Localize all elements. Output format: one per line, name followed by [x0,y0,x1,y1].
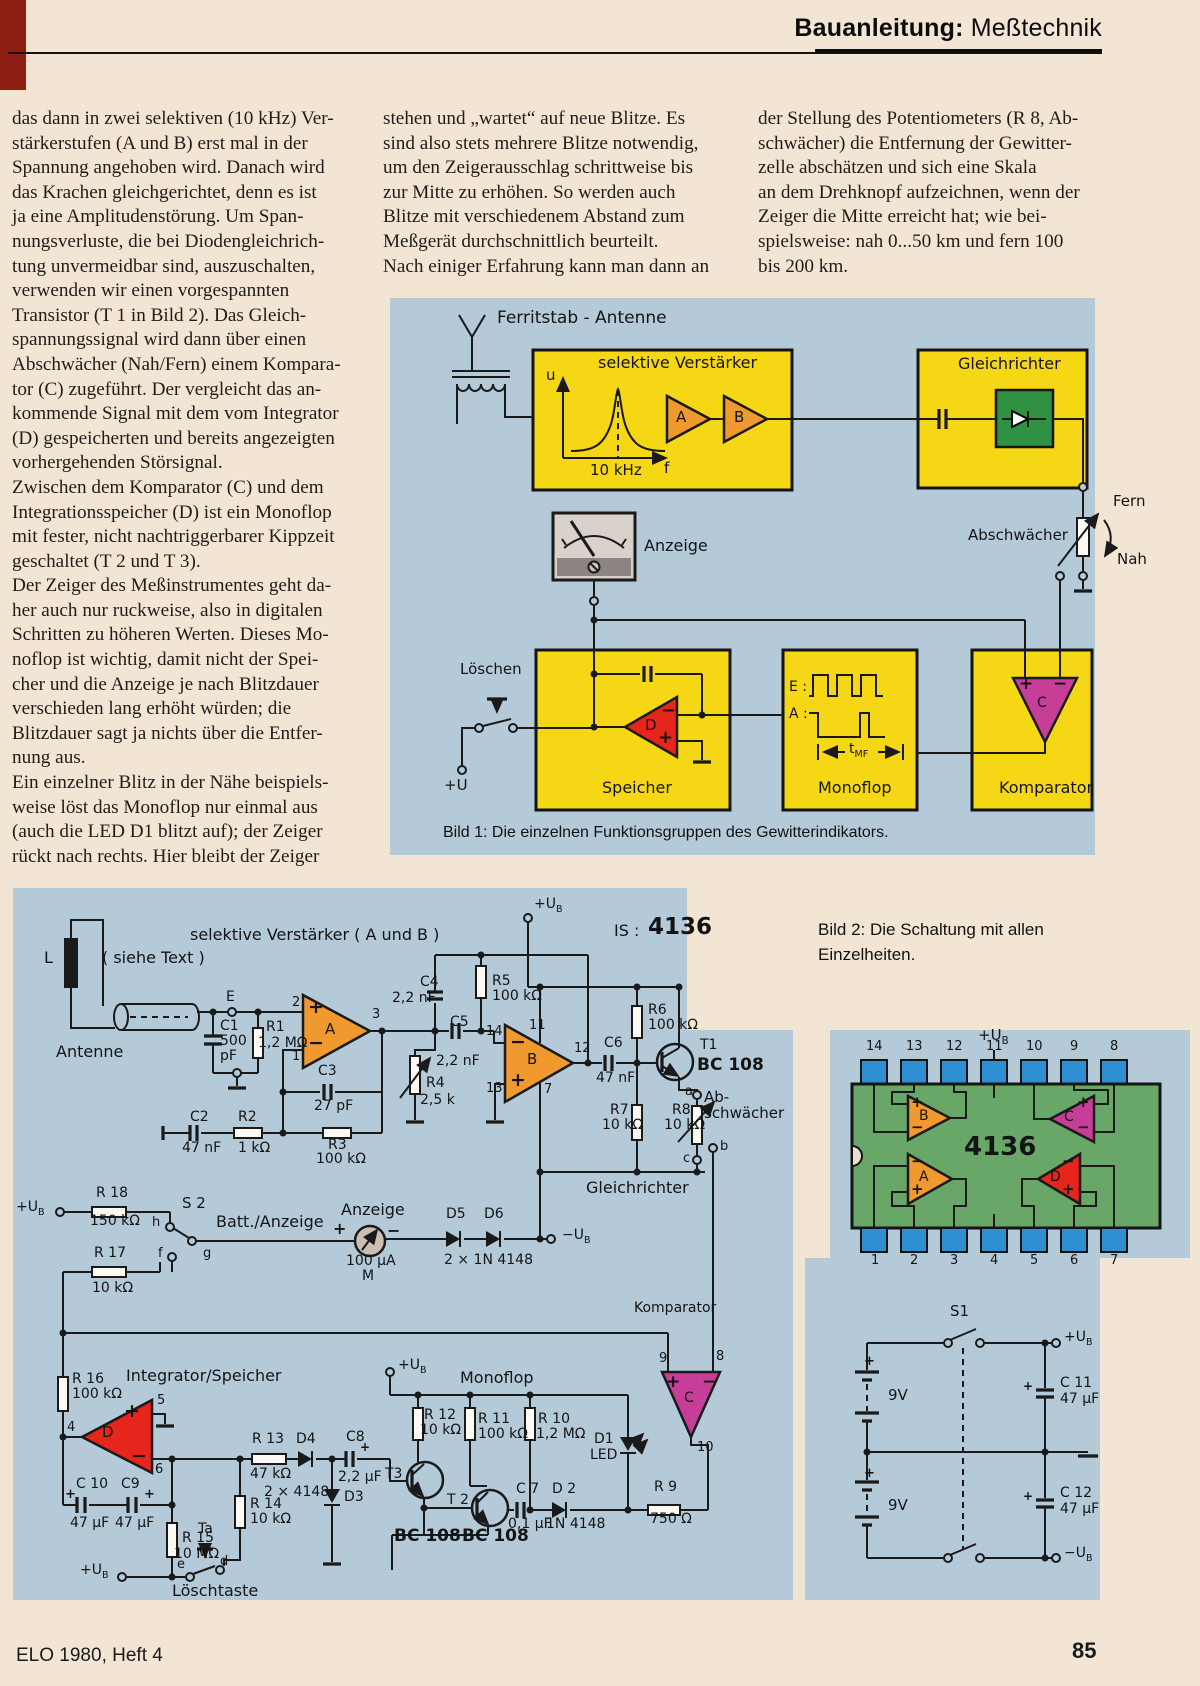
schematic-label: C [1037,696,1047,711]
schematic-label: 10 kΩ [92,1281,133,1296]
schematic-label: T1 [700,1038,717,1053]
schematic-label: 2,5 k [420,1093,455,1108]
schematic-label: 47 nF [182,1141,221,1156]
schematic-labels: Ferritstab - Antenneselektive Verstärker… [0,0,1200,1686]
schematic-label: 10 kΩ [664,1118,705,1133]
schematic-label: +UB [534,897,563,915]
bild1-caption: Bild 1: Die einzelnen Funktionsgruppen d… [443,824,889,842]
monoflop-title: Monoflop [818,780,892,797]
schematic-label: R 17 [94,1246,126,1261]
schematic-label: LED [590,1448,617,1463]
schematic-label: + [666,1373,680,1391]
schematic-label: 13 [906,1040,923,1054]
schematic-label: R6 [648,1003,667,1018]
schematic-label: +UB [398,1358,427,1376]
schematic-label: T 2 [447,1493,469,1508]
schematic-label: 9V [888,1388,908,1404]
schematic-label: − [308,1033,324,1053]
schematic-label: C3 [318,1064,337,1079]
komparator-label-2: Komparator [634,1301,716,1316]
schematic-label: 2 × 4148 [264,1485,329,1500]
schematic-label: R4 [426,1076,445,1091]
schematic-label: + [1023,1490,1033,1503]
schematic-label: 11 [529,1019,546,1033]
schematic-label: c [683,1152,690,1166]
schematic-label: E [226,990,235,1005]
schematic-label: 10 [1026,1040,1043,1054]
loeschen-label: Löschen [460,662,522,678]
schematic-label: 8 [716,1350,724,1364]
schematic-label: + [911,1182,924,1198]
schematic-label: 47 μF [1060,1392,1099,1407]
bild2-caption: Bild 2: Die Schaltung mit allen Einzelhe… [818,918,1044,967]
schematic-label: + [510,1070,526,1090]
schematic-label: 1 [292,1050,300,1064]
anzeige-label: Anzeige [644,538,708,555]
schematic-label: 1N 4148 [546,1517,605,1532]
schematic-label: E : [789,680,807,695]
schematic-label: S 2 [182,1196,206,1212]
schematic-label: C [684,1391,694,1406]
schematic-label: −UB [1064,1546,1093,1564]
schematic-label: + [360,1441,370,1454]
schematic-label: C4 [420,975,439,990]
schematic-label: R 18 [96,1186,128,1201]
schematic-label: R 10 [538,1412,570,1427]
schematic-label: 10 [697,1441,714,1455]
schematic-label: D6 [484,1207,504,1222]
schematic-label: 12 [946,1040,963,1054]
schematic-label: − [131,1446,147,1466]
schematic-label: L [44,950,53,967]
selektive-verstaerker-title: selektive Verstärker [598,355,757,372]
schematic-label: + [864,1467,875,1481]
schematic-label: C 12 [1060,1486,1092,1501]
schematic-label: 47 kΩ [250,1467,291,1482]
schematic-label: g [203,1247,211,1261]
schematic-label: − [661,701,676,720]
antenne-label: Antenne [56,1044,123,1061]
schematic-label: 6 [1070,1254,1078,1268]
schematic-label: 2 × 1N 4148 [444,1253,533,1268]
schematic-label: − [387,1223,400,1240]
schematic-label: 100 kΩ [316,1152,366,1167]
schematic-label: 47 μF [115,1516,154,1531]
schematic-label: + [308,997,324,1017]
amp-b-label: B [734,410,744,426]
schematic-label: 11 [986,1040,1003,1054]
schematic-label: 47 μF [1060,1502,1099,1517]
schematic-label: C5 [450,1015,469,1030]
komparator-title: Komparator [999,780,1093,797]
schematic-label: + [1077,1095,1090,1111]
schematic-label: 47 μF [70,1516,109,1531]
schematic-label: BC 108 [394,1527,461,1545]
amp-a-label: A [676,410,686,426]
schematic-label: 7 [544,1083,552,1097]
schematic-label: R7 [610,1103,629,1118]
schematic-label: A [325,1022,335,1038]
10khz-label: 10 kHz [590,463,642,479]
schematic-label: +UB [1064,1330,1093,1348]
schematic-label: + [1023,1380,1033,1393]
schematic-label: C6 [604,1036,623,1051]
schematic-label: 2,2 μF [338,1470,382,1485]
schematic-label: b [720,1140,728,1154]
schematic-label: R 13 [252,1432,284,1447]
schematic-label: +UB [80,1563,109,1581]
schematic-label: 12 [574,1042,591,1056]
schematic-label: 9 [659,1352,667,1366]
schematic-label: R 11 [478,1412,510,1427]
nah-label: Nah [1117,552,1147,568]
schematic-label: − [1053,675,1067,693]
schematic-label: BC 108 [697,1056,764,1074]
u-axis-label: u [546,368,556,384]
ic-4136-label: 4136 [964,1134,1036,1162]
schematic-label: 3 [950,1254,958,1268]
schematic-label: S1 [950,1304,969,1320]
schematic-label: h [152,1216,160,1230]
schematic-label: A : [789,707,808,722]
schematic-label: + [658,728,673,747]
schematic-label: tMF [849,742,868,760]
schematic-label: D [102,1425,114,1441]
schematic-label: 2,2 nF [392,991,436,1006]
schematic-label: 13 [486,1082,503,1096]
schematic-label: e [177,1558,185,1572]
schematic-label: 2 [910,1254,918,1268]
schematic-label: R2 [238,1110,257,1125]
schematic-label: C2 [190,1110,209,1125]
schematic-label: D5 [446,1207,466,1222]
schematic-label: d [220,1555,228,1569]
schematic-label: R5 [492,974,511,989]
schematic-label: 8 [1110,1040,1118,1054]
schematic-label: 7 [1110,1254,1118,1268]
schematic-label: −UB [562,1228,591,1246]
schematic-label: + [1062,1182,1075,1198]
schematic-label: 4136 [648,915,712,939]
schematic-label: 100 μA [346,1254,396,1269]
schematic-label: C1 500 pF [220,1019,247,1063]
schematic-label: D3 [344,1490,364,1505]
schematic-label: − [1062,1154,1075,1170]
schematic-label: C9 [121,1477,140,1492]
anzeige-label-2: Anzeige [341,1202,405,1219]
schematic-label: IS : [614,923,639,940]
schematic-label: C 7 [516,1482,539,1497]
schematic-label: 2 [292,996,300,1010]
fern-label: Fern [1113,494,1145,510]
schematic-label: + [1019,675,1033,693]
schematic-label: 14 [866,1040,883,1054]
schematic-label: M [362,1269,374,1284]
magazine-page: Bauanleitung: Meßtechnik das dann in zwe… [0,0,1200,1686]
schematic-label: 2,2 nF [436,1054,480,1069]
schematic-label: B [527,1052,537,1068]
schematic-label: R 12 [424,1408,456,1423]
schematic-label: C 11 [1060,1376,1092,1391]
loeschtaste-label: Löschtaste [172,1583,258,1600]
schematic-label: 5 [157,1394,165,1408]
schematic-label: 10 kΩ [602,1118,643,1133]
schematic-label: 27 pF [314,1099,353,1114]
schematic-label: 4 [990,1254,998,1268]
bild2-amp-title: selektive Verstärker ( A und B ) [190,927,439,944]
schematic-label: + [144,1488,155,1502]
schematic-label: − [1077,1120,1090,1136]
schematic-label: 10 kΩ [250,1512,291,1527]
schematic-label: 100 kΩ [478,1427,528,1442]
schematic-label: + [864,1355,875,1369]
schematic-label: + [65,1488,76,1502]
schematic-label: 100 kΩ [648,1018,698,1033]
schematic-label: 10 kΩ [420,1423,461,1438]
schematic-label: 1,2 MΩ [536,1427,586,1442]
schematic-label: R1 [266,1020,285,1035]
schematic-label: 3 [372,1008,380,1022]
schematic-label: ( siehe Text ) [102,950,205,967]
schematic-label: + [333,1221,346,1238]
ferritstab-antenne-label: Ferritstab - Antenne [497,309,667,327]
f-axis-label: f [664,461,669,477]
abschwaecher-label: Abschwächer [968,528,1068,544]
schematic-label: 1 [871,1254,879,1268]
schematic-label: − [702,1373,716,1391]
schematic-label: R 9 [654,1480,677,1495]
schematic-label: 9 [1070,1040,1078,1054]
schematic-label: 750 Ω [650,1512,692,1527]
schematic-label: a [685,1085,693,1099]
schematic-label: 6 [155,1463,163,1477]
schematic-label: 4 [67,1421,75,1435]
monoflop-label-2: Monoflop [460,1370,534,1387]
gleichrichter-title: Gleichrichter [958,356,1061,373]
schematic-label: f [158,1247,163,1261]
plus-u-label: +U [444,778,468,794]
schematic-label: C [1064,1110,1074,1125]
schematic-label: 9V [888,1498,908,1514]
schematic-label: 1 kΩ [238,1141,270,1156]
schematic-label: Ab- schwächer [704,1090,784,1122]
schematic-label: 14 [486,1025,503,1039]
schematic-label: + [124,1401,140,1421]
schematic-label: 47 nF [596,1071,635,1086]
gleichrichter-label-2: Gleichrichter [586,1180,689,1197]
speicher-title: Speicher [602,780,672,797]
page-number: 85 [1072,1638,1096,1664]
schematic-label: − [911,1120,924,1136]
schematic-label: 1,2 MΩ [258,1036,308,1051]
integrator-speicher-title: Integrator/Speicher [126,1368,282,1385]
batt-anzeige-label: Batt./Anzeige [216,1214,324,1231]
schematic-label: R8 [672,1103,691,1118]
schematic-label: 100 kΩ [72,1387,122,1402]
schematic-label: C 10 [76,1477,108,1492]
schematic-label: R 16 [72,1372,104,1387]
schematic-label: − [911,1154,924,1170]
schematic-label: + [911,1095,924,1111]
schematic-label: − [510,1032,526,1052]
schematic-label: D1 [594,1432,614,1447]
schematic-label: 150 kΩ [90,1214,140,1229]
schematic-label: 100 kΩ [492,989,542,1004]
schematic-label: D [645,718,657,734]
schematic-label: T3 [385,1467,402,1482]
schematic-label: D 2 [552,1482,576,1497]
schematic-label: 5 [1030,1254,1038,1268]
footer-issue: ELO 1980, Heft 4 [16,1645,163,1667]
schematic-label: +UB [16,1200,45,1218]
schematic-label: D4 [296,1432,316,1447]
schematic-label: Ta [198,1522,213,1537]
schematic-label: D [1050,1170,1061,1185]
